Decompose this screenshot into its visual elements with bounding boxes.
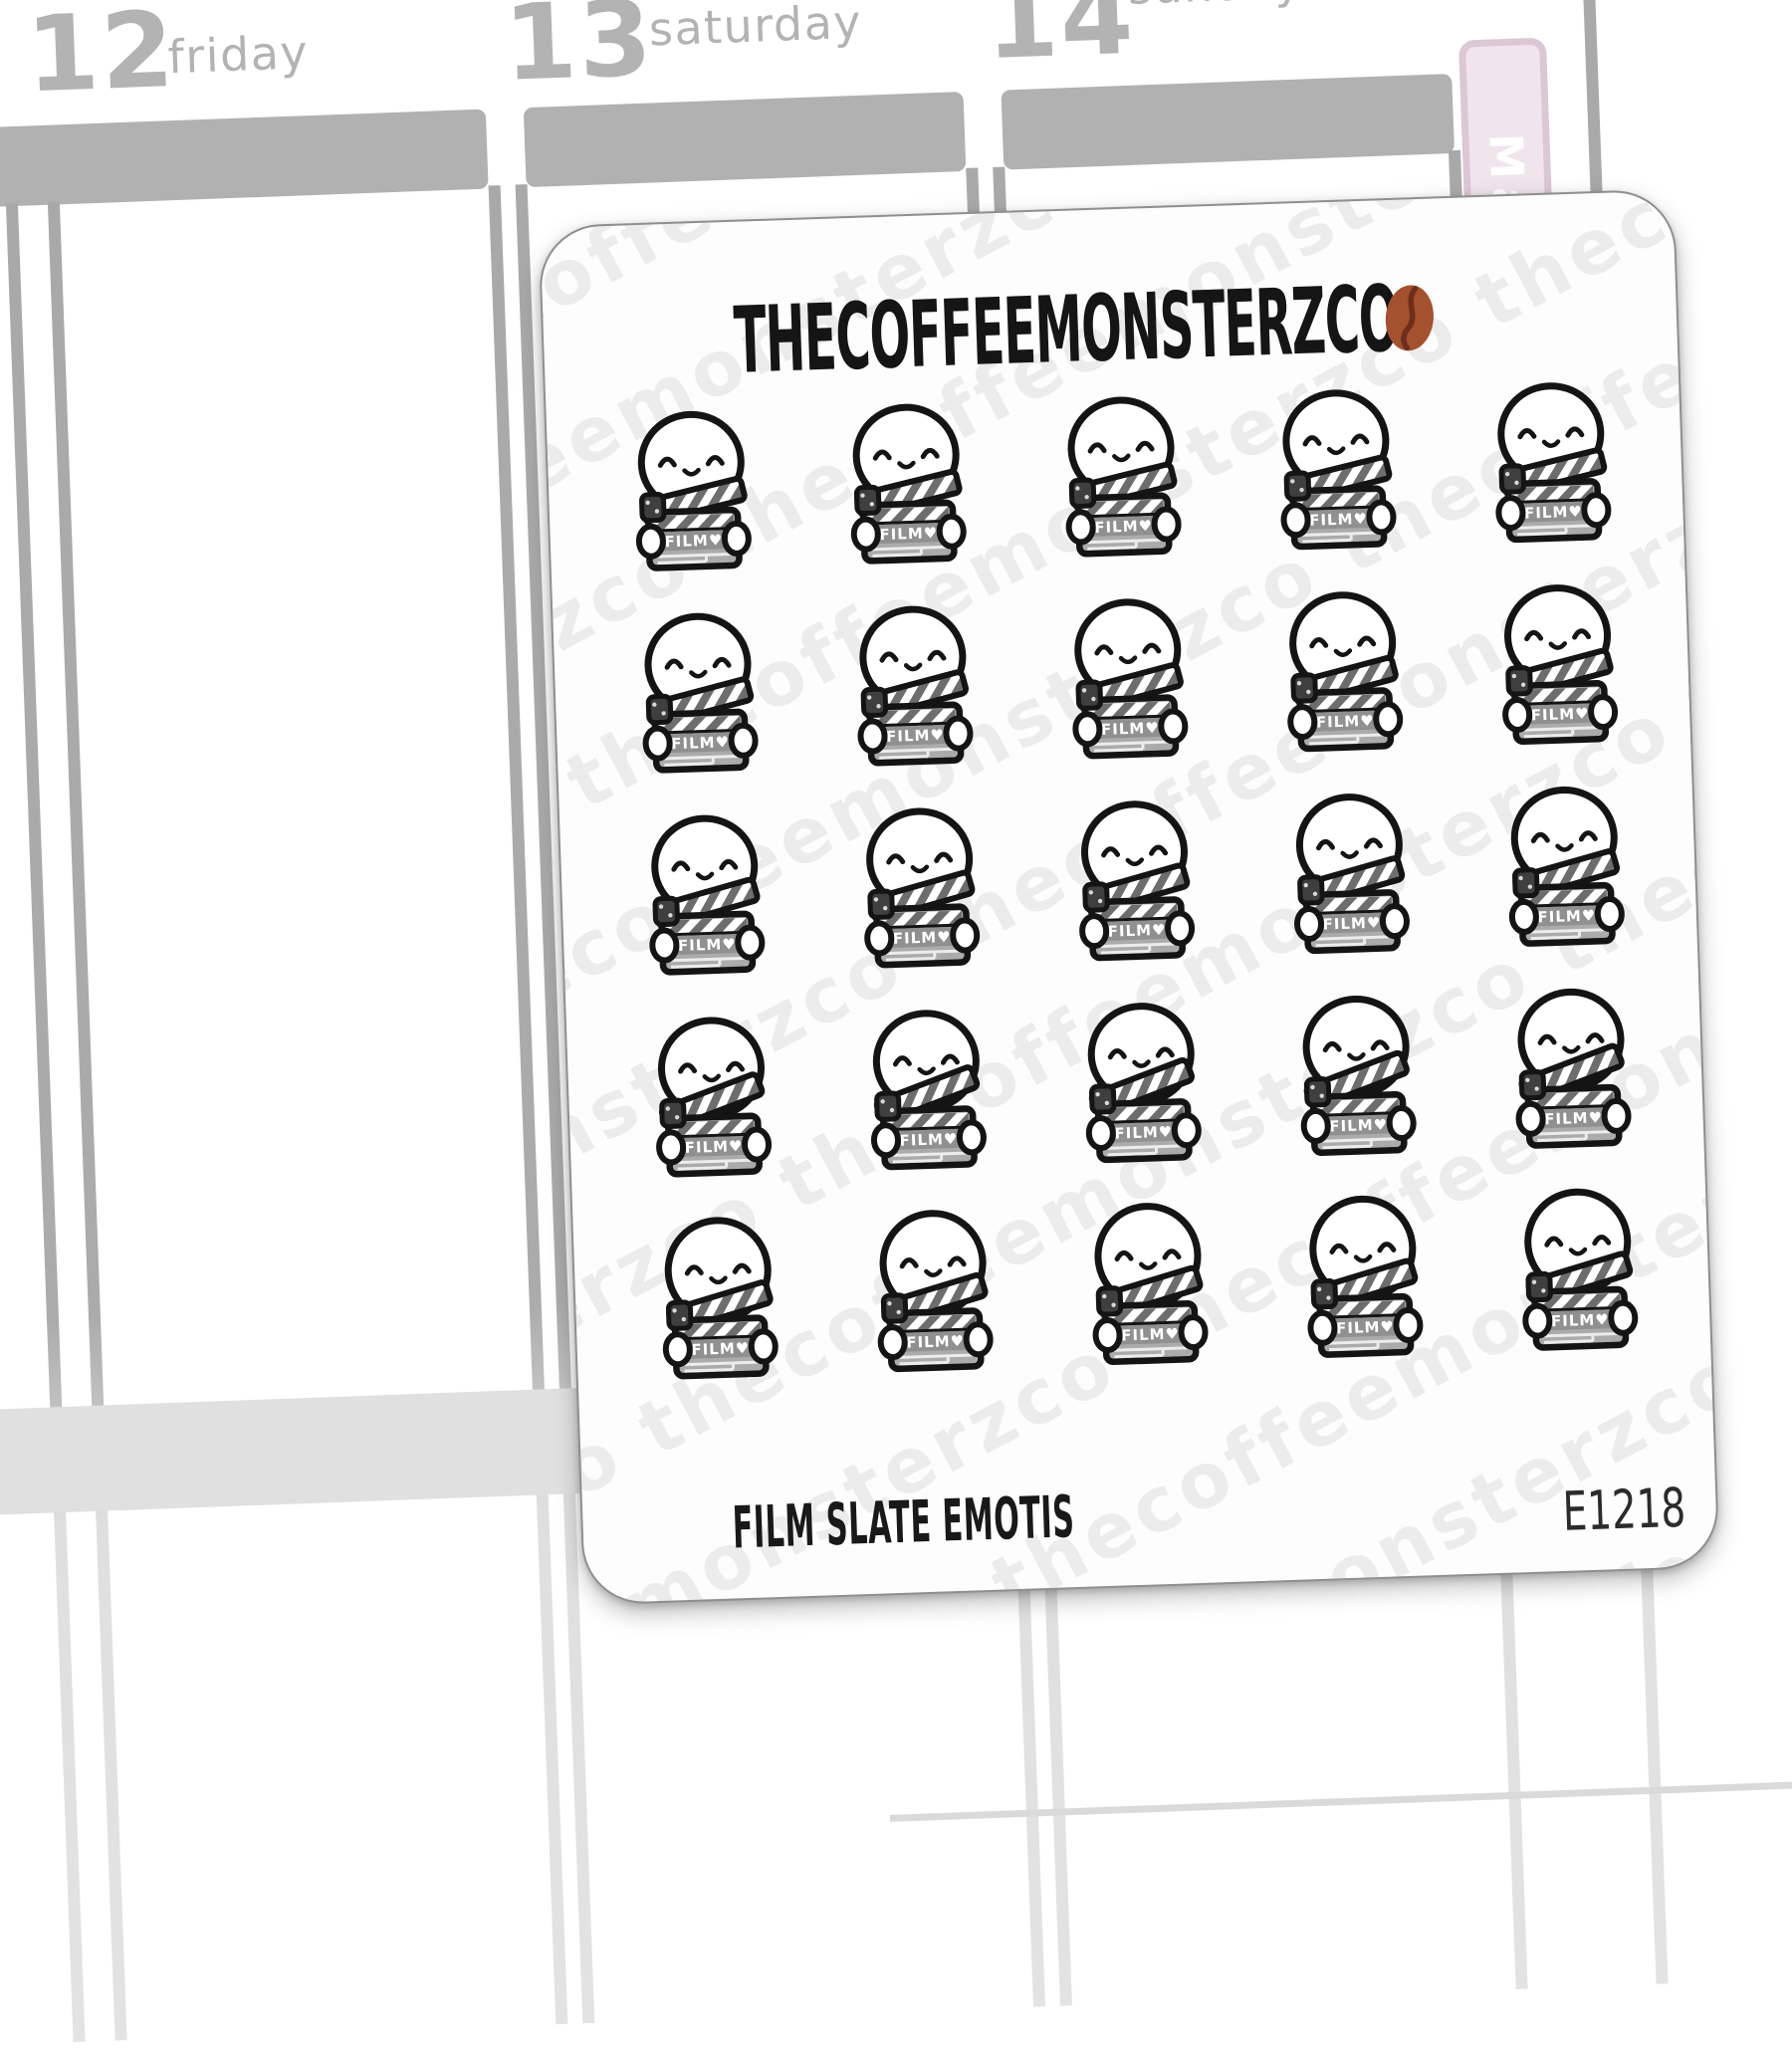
- sticker-emoti: FILM♥: [816, 984, 1038, 1193]
- film-slate-emoti-icon: FILM♥: [828, 395, 986, 569]
- svg-text:FILM♥: FILM♥: [691, 1338, 750, 1358]
- sticker-emoti: FILM♥: [1227, 363, 1449, 572]
- svg-text:FILM♥: FILM♥: [1322, 913, 1381, 933]
- film-slate-emoti-icon: FILM♥: [627, 806, 784, 981]
- film-slate-emoti-icon: FILM♥: [855, 1204, 1012, 1378]
- calendar-column-line: [6, 203, 86, 2042]
- sticker-emoti: FILM♥: [1455, 761, 1677, 970]
- film-slate-emoti-icon: FILM♥: [1050, 590, 1208, 765]
- film-slate-emoti-icon: FILM♥: [613, 402, 771, 576]
- svg-text:FILM♥: FILM♥: [671, 733, 730, 753]
- svg-text:FILM♥: FILM♥: [1107, 920, 1166, 940]
- film-slate-emoti-icon: FILM♥: [848, 1002, 1006, 1176]
- film-slate-emoti-icon: FILM♥: [634, 1009, 791, 1183]
- film-slate-emoti-icon: FILM♥: [620, 604, 778, 779]
- film-slate-emoti-icon: FILM♥: [1278, 988, 1436, 1162]
- film-slate-emoti-icon: FILM♥: [835, 597, 993, 772]
- svg-text:FILM♥: FILM♥: [684, 1136, 743, 1156]
- svg-text:FILM♥: FILM♥: [1309, 509, 1368, 529]
- day-label-saturday: saturday: [648, 0, 863, 52]
- sticker-emoti: FILM♥: [1232, 566, 1455, 775]
- film-slate-emoti-icon: FILM♥: [1070, 1197, 1228, 1371]
- svg-text:FILM♥: FILM♥: [893, 927, 952, 947]
- day-number-14: 14: [984, 0, 1137, 75]
- sticker-emoti: FILM♥: [594, 790, 816, 999]
- film-slate-emoti-icon: FILM♥: [1480, 576, 1638, 751]
- calendar-header-band: [1001, 74, 1455, 170]
- day-number-13: 13: [502, 0, 655, 97]
- sticker-emoti: FILM♥: [1441, 356, 1663, 566]
- calendar-column-line: [48, 201, 127, 2040]
- film-slate-emoti-icon: FILM♥: [1486, 778, 1644, 952]
- day-label-sunday: sunday: [1127, 0, 1303, 11]
- product-code: E1218: [1562, 1481, 1686, 1539]
- sticker-emoti: FILM♥: [802, 580, 1024, 790]
- sticker-emoti: FILM♥: [601, 991, 823, 1200]
- day-label-friday: friday: [167, 29, 310, 80]
- film-slate-emoti-icon: FILM♥: [1285, 1189, 1443, 1363]
- sticker-emoti: FILM♥: [588, 587, 810, 796]
- film-slate-emoti-icon: FILM♥: [1265, 583, 1423, 758]
- svg-text:FILM♥: FILM♥: [1551, 1310, 1610, 1330]
- sticker-emoti: FILM♥: [1461, 963, 1683, 1172]
- svg-text:FILM♥: FILM♥: [899, 1129, 958, 1149]
- film-slate-emoti-icon: FILM♥: [1500, 1182, 1658, 1356]
- sticker-emoti: FILM♥: [1017, 572, 1239, 782]
- sticker-emoti: FILM♥: [1246, 970, 1468, 1179]
- svg-text:FILM♥: FILM♥: [1114, 1122, 1173, 1142]
- sticker-emoti: FILM♥: [608, 1193, 830, 1402]
- calendar-header-band: [524, 92, 967, 187]
- svg-text:FILM♥: FILM♥: [1530, 704, 1589, 724]
- svg-text:FILM♥: FILM♥: [906, 1331, 965, 1351]
- film-slate-emoti-icon: FILM♥: [1258, 381, 1416, 556]
- svg-text:FILM♥: FILM♥: [1537, 906, 1596, 926]
- day-number-12: 12: [25, 0, 178, 108]
- film-slate-emoti-icon: FILM♥: [1043, 388, 1201, 563]
- svg-text:FILM♥: FILM♥: [1329, 1115, 1388, 1135]
- product-name: FILM SLATE EMOTIS: [732, 1487, 1076, 1556]
- svg-text:FILM♥: FILM♥: [1121, 1324, 1180, 1344]
- svg-text:FILM♥: FILM♥: [678, 935, 737, 955]
- sticker-emoti: FILM♥: [1031, 977, 1253, 1186]
- film-slate-emoti-icon: FILM♥: [640, 1211, 797, 1385]
- svg-text:FILM♥: FILM♥: [879, 524, 938, 544]
- svg-text:FILM♥: FILM♥: [1544, 1108, 1603, 1128]
- sticker-emoti: FILM♥: [581, 385, 803, 594]
- svg-text:FILM♥: FILM♥: [1524, 502, 1583, 522]
- svg-text:FILM♥: FILM♥: [664, 531, 723, 551]
- svg-text:FILM♥: FILM♥: [1336, 1317, 1395, 1337]
- svg-text:FILM♥: FILM♥: [1101, 718, 1160, 738]
- sticker-grid: FILM♥ FILM♥: [581, 356, 1689, 1402]
- film-slate-emoti-icon: FILM♥: [1063, 995, 1221, 1169]
- svg-text:FILM♥: FILM♥: [886, 726, 945, 746]
- sticker-emoti: FILM♥: [1038, 1179, 1260, 1388]
- film-slate-emoti-icon: FILM♥: [1473, 374, 1631, 549]
- sticker-emoti: FILM♥: [1448, 559, 1670, 768]
- film-slate-emoti-icon: FILM♥: [1493, 980, 1651, 1154]
- calendar-header-band: [0, 110, 489, 213]
- sticker-emoti: FILM♥: [823, 1186, 1045, 1395]
- sticker-emoti: FILM♥: [1024, 775, 1246, 984]
- coffee-bean-icon: [1380, 281, 1440, 355]
- film-slate-emoti-icon: FILM♥: [842, 799, 1000, 974]
- film-slate-emoti-icon: FILM♥: [1272, 786, 1430, 960]
- sticker-emoti: FILM♥: [796, 378, 1018, 587]
- sticker-sheet: thecoffeemonsterzco thecoffeemonsterzco …: [538, 188, 1719, 1605]
- sticker-emoti: FILM♥: [1011, 370, 1233, 579]
- sticker-emoti: FILM♥: [1239, 768, 1461, 977]
- product-photo-page: { "calendar": { "days": [ {"number": "12…: [0, 0, 1792, 1792]
- svg-text:FILM♥: FILM♥: [1094, 517, 1153, 537]
- svg-text:FILM♥: FILM♥: [1316, 711, 1375, 731]
- sticker-emoti: FILM♥: [809, 782, 1031, 991]
- sticker-emoti: FILM♥: [1252, 1172, 1474, 1381]
- film-slate-emoti-icon: FILM♥: [1057, 793, 1215, 967]
- sticker-emoti: FILM♥: [1467, 1165, 1689, 1374]
